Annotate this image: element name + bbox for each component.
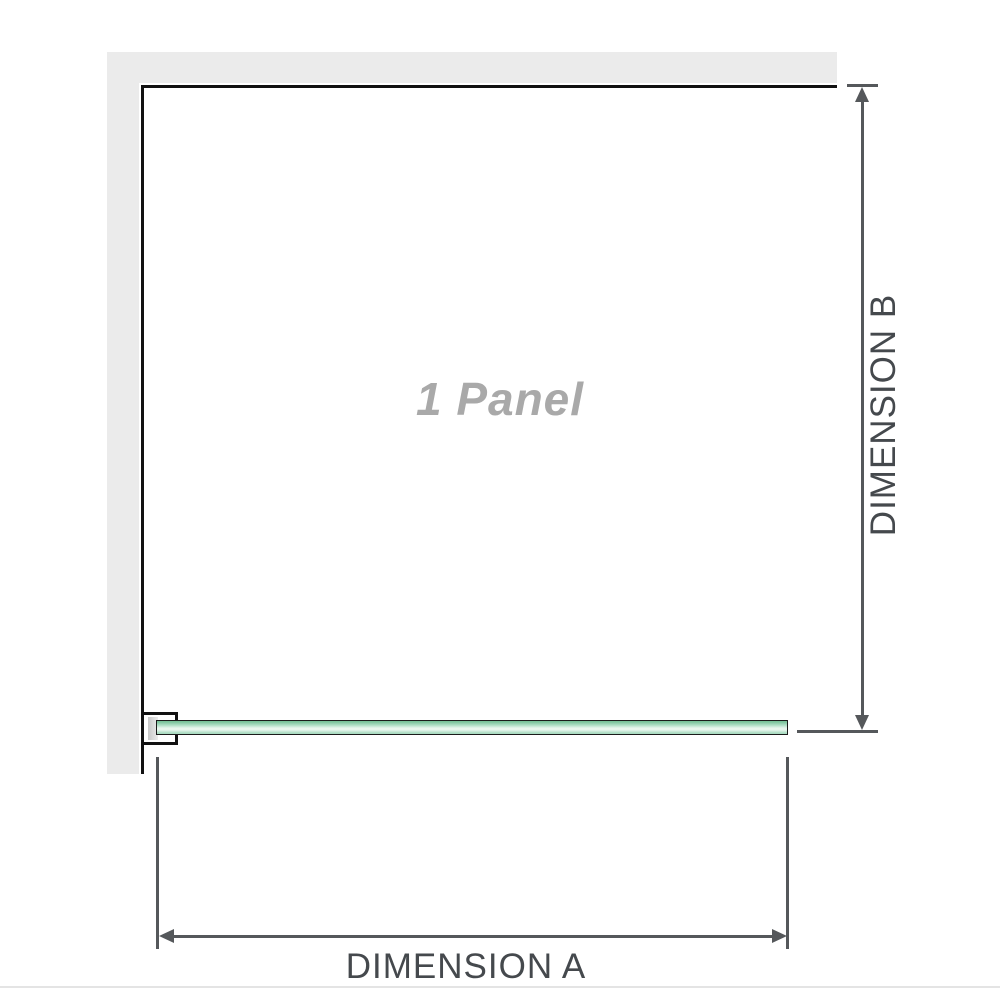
arrow-down-icon [855, 715, 869, 730]
dim-a-label: DIMENSION A [346, 947, 586, 987]
panel-top-edge-line [141, 85, 837, 88]
panel-dimension-diagram: 1 Panel DIMENSION B DIMENSION A [0, 0, 1000, 1000]
dim-a-right-extension-line [786, 757, 789, 949]
dim-a-left-extension-line [156, 757, 159, 949]
panel-count-label: 1 Panel [416, 372, 584, 426]
glass-panel-bar [156, 720, 788, 735]
wall-top-bar [107, 52, 837, 83]
wall-left-bar [107, 52, 139, 774]
arrow-up-icon [855, 87, 869, 102]
bottom-divider [0, 986, 1000, 988]
panel-left-edge-line [141, 85, 144, 774]
dim-a-line [170, 935, 776, 938]
dim-b-label: DIMENSION B [864, 294, 904, 536]
arrow-right-icon [772, 929, 787, 943]
arrow-left-icon [159, 929, 174, 943]
